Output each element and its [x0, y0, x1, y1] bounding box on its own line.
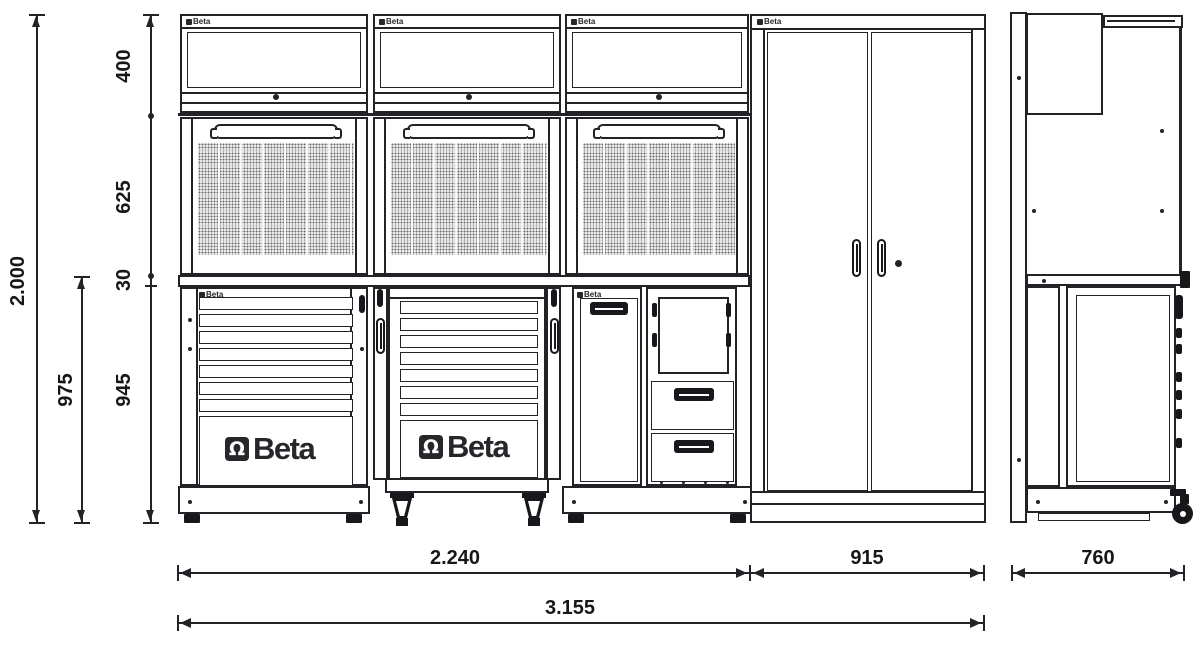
handle-nub [652, 303, 657, 317]
dim-arrow [77, 278, 85, 289]
dim-arrow [32, 16, 40, 27]
drawer [400, 369, 538, 382]
post-line [191, 119, 193, 273]
caster-wheel [390, 493, 414, 526]
dim-label-760: 760 [1068, 548, 1128, 568]
handle-pin [377, 289, 383, 307]
side-handle [1175, 295, 1183, 319]
dim-label-915: 915 [837, 548, 897, 568]
drawer [199, 382, 353, 395]
dim-line-975 [81, 277, 83, 523]
dim-label-975: 975 [56, 365, 76, 415]
drawer [400, 403, 538, 416]
dim-line-total-height [36, 15, 38, 523]
side-wall-unit-profile [1026, 13, 1103, 115]
dim-line-915 [751, 572, 983, 574]
frame-line [567, 102, 747, 104]
dim-tick [983, 565, 985, 581]
screw-dot [1036, 500, 1040, 504]
beta-wordmark: Beta [764, 18, 781, 25]
drawer-handle-edge [1176, 344, 1182, 354]
dim-chain-line [150, 15, 152, 523]
drawer [199, 399, 353, 412]
drawer [199, 348, 353, 361]
screw-dot [359, 500, 363, 504]
door-handle [877, 239, 886, 277]
dim-tick [143, 522, 159, 524]
side-cabinet-profile [1066, 286, 1176, 487]
side-upright-post [1010, 12, 1027, 523]
dim-arrow [753, 568, 764, 578]
caster-wheel [522, 493, 546, 526]
panel-bay-1 [180, 117, 368, 275]
roller-cab-rail-left [373, 287, 388, 480]
dim-line-760 [1012, 572, 1184, 574]
dim-label-945: 945 [114, 365, 134, 415]
screw-dot [1042, 279, 1046, 283]
drawer [400, 352, 538, 365]
beta-wordmark: Beta [584, 291, 601, 298]
tilt-compartment [658, 297, 729, 374]
beta-wrench-icon: Ω [571, 19, 577, 25]
cabinet-foot [568, 514, 584, 523]
worktop [178, 275, 750, 287]
drawer-unit [646, 287, 737, 486]
dim-arrow [180, 568, 191, 578]
drawer [400, 301, 538, 314]
drawer-handle-edge [1176, 372, 1182, 382]
drawer-handle-edge [1176, 409, 1182, 419]
beta-wordmark: Beta [253, 436, 314, 462]
screw-dot [188, 318, 192, 322]
beta-logo-mini: Ω Beta [577, 291, 601, 298]
side-handle [376, 318, 385, 354]
side-plinth [1026, 487, 1176, 513]
handle-pin [551, 289, 557, 307]
caster-foot [528, 518, 540, 526]
panel-top-rail [178, 113, 750, 116]
drawer [199, 314, 353, 327]
side-worktop [1026, 274, 1188, 286]
drawer-handle [674, 388, 714, 401]
beta-wordmark: Beta [193, 18, 210, 25]
beta-wrench-icon: Ω [186, 19, 192, 25]
screw-dot [743, 500, 747, 504]
frame-line [1107, 20, 1175, 22]
dim-arrow [1014, 568, 1025, 578]
post-line [576, 119, 578, 273]
beta-wrench-icon: Ω [757, 19, 763, 25]
dim-line-3155 [178, 622, 984, 624]
wall-unit-1: Ω Beta [180, 14, 368, 113]
drawer-handle-edge [1176, 438, 1182, 448]
cabinet-foot [184, 514, 200, 523]
cabinet-foot [730, 514, 746, 523]
plinth-base-1 [178, 486, 370, 514]
door-panel [580, 298, 638, 482]
dim-tick [74, 522, 90, 524]
dim-label-625: 625 [114, 172, 134, 222]
lock-icon [656, 94, 662, 100]
side-panel-line [196, 289, 198, 484]
drawer [400, 386, 538, 399]
drawer [400, 335, 538, 348]
side-recessed-panel [1076, 295, 1170, 482]
dim-label-3155: 3.155 [530, 598, 610, 618]
cabinet-door-right [871, 32, 972, 491]
beta-wordmark: Beta [447, 434, 508, 460]
beta-logo-mini: Ω Beta [757, 18, 781, 25]
drawer [400, 318, 538, 331]
side-panel-strip [1026, 286, 1060, 487]
screw-dot [188, 347, 192, 351]
tool-holder-rail [597, 124, 721, 139]
lock-icon [466, 94, 472, 100]
frame-line [375, 27, 559, 29]
technical-drawing-workshop-system: Ω Beta Ω Beta Ω Beta [0, 0, 1200, 646]
side-top-rail [1103, 15, 1183, 28]
frame-line [752, 28, 984, 30]
screw-dot [660, 481, 663, 484]
beta-wordmark: Beta [386, 18, 403, 25]
caster-fork [524, 498, 544, 519]
lock-icon [273, 94, 279, 100]
flip-door [572, 32, 742, 88]
beta-logo: Ω Beta [225, 436, 314, 462]
wall-unit-2: Ω Beta [373, 14, 561, 113]
door-handle [590, 302, 628, 315]
dim-chain-dot [148, 273, 154, 279]
beta-wrench-icon: Ω [379, 19, 385, 25]
dim-arrow [32, 510, 40, 521]
dim-arrow [1170, 568, 1181, 578]
tool-holder-rail [214, 124, 338, 139]
dim-line-2240 [178, 572, 749, 574]
frame-line [752, 491, 984, 493]
plinth-base-3 [562, 486, 754, 514]
drawer [199, 331, 353, 344]
side-foot-bar [1038, 513, 1150, 521]
drawer [651, 433, 734, 482]
dim-arrow [970, 568, 981, 578]
screw-dot [360, 347, 364, 351]
roller-cab-base [385, 478, 549, 493]
frame-line [752, 503, 984, 505]
tool-holder-rail [407, 124, 531, 139]
drawer [651, 381, 734, 430]
post-line [548, 119, 550, 273]
dim-arrow [180, 618, 191, 628]
drawer [199, 297, 353, 310]
frame-line [763, 30, 765, 491]
beta-wrench-icon: Ω [419, 435, 443, 459]
frame-line [375, 102, 559, 104]
drawer-handle [674, 440, 714, 453]
beta-wrench-icon: Ω [577, 292, 583, 298]
worktop-end-cap [1180, 271, 1190, 288]
frame-line [182, 27, 366, 29]
screw-dot [726, 481, 729, 484]
screw-dot [1032, 209, 1036, 213]
perforated-panel [583, 143, 735, 255]
drawer-handle-edge [1176, 328, 1182, 338]
frame-line [182, 102, 366, 104]
beta-wrench-icon: Ω [225, 437, 249, 461]
tall-cabinet: Ω Beta [750, 14, 986, 523]
caster-foot [396, 518, 408, 526]
caster-plate [522, 493, 546, 498]
door-handle [852, 239, 861, 277]
screw-dot [1017, 76, 1021, 80]
dim-label-30: 30 [114, 260, 134, 300]
tall-door-unit: Ω Beta [572, 287, 642, 486]
post-line [384, 119, 386, 273]
caster-plate [390, 493, 414, 498]
dim-arrow [970, 618, 981, 628]
screw-dot [1160, 209, 1164, 213]
screw-dot [682, 481, 685, 484]
lock-icon [895, 260, 902, 267]
beta-logo-mini: Ω Beta [571, 18, 595, 25]
frame-line [390, 297, 544, 299]
screw-dot [572, 500, 576, 504]
screw-dot [1164, 500, 1168, 504]
drawer-handle-edge [1176, 390, 1182, 400]
beta-wordmark: Beta [578, 18, 595, 25]
dim-label-400: 400 [114, 41, 134, 91]
cabinet-foot [346, 514, 362, 523]
side-back-edge [1179, 27, 1182, 275]
dim-chain-dot [148, 113, 154, 119]
flip-door [380, 32, 554, 88]
dim-label-2240: 2.240 [415, 548, 495, 568]
dim-arrow [736, 568, 747, 578]
flip-door [187, 32, 361, 88]
handle-pin [359, 295, 365, 313]
dim-arrow [146, 16, 154, 27]
post-line [736, 119, 738, 273]
handle-nub [726, 303, 731, 317]
panel-bay-3 [565, 117, 749, 275]
beta-logo: Ω Beta [419, 434, 508, 460]
roller-cab-rail-right [546, 287, 561, 480]
beta-logo-mini: Ω Beta [379, 18, 403, 25]
beta-logo-mini: Ω Beta [186, 18, 210, 25]
screw-dot [1160, 129, 1164, 133]
post-line [355, 119, 357, 273]
handle-nub [726, 333, 731, 347]
perforated-panel [198, 143, 354, 255]
dim-arrow [77, 510, 85, 521]
frame-line [567, 27, 747, 29]
dim-tick [29, 522, 45, 524]
dim-label-total-height: 2.000 [8, 252, 28, 310]
caster-fork [392, 498, 412, 519]
drawer [199, 365, 353, 378]
dim-tick [145, 285, 157, 287]
panel-bay-2 [373, 117, 561, 275]
dim-arrow [146, 510, 154, 521]
side-handle [550, 318, 559, 354]
wall-unit-3: Ω Beta [565, 14, 749, 113]
screw-dot [188, 500, 192, 504]
perforated-panel [391, 143, 547, 255]
screw-dot [1017, 458, 1021, 462]
handle-nub [652, 333, 657, 347]
caster-wheel [1172, 503, 1193, 524]
screw-dot [704, 481, 707, 484]
